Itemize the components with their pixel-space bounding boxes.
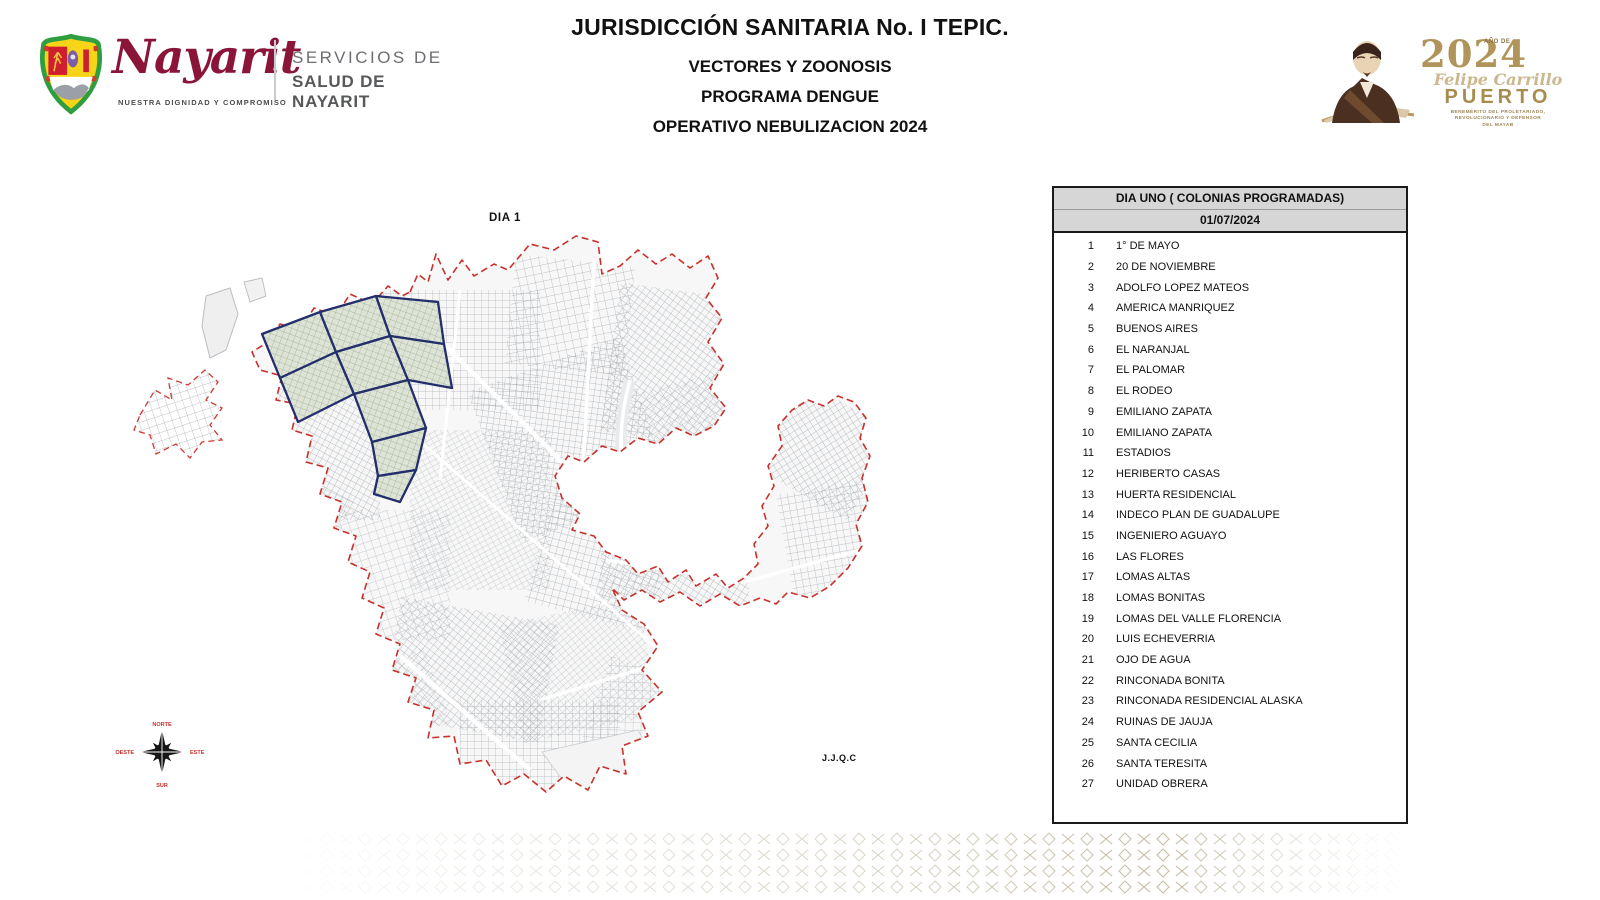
row-number: 9 [1054,406,1094,418]
table-row: 5BUENOS AIRES [1054,319,1406,340]
table-row: 6EL NARANJAL [1054,339,1406,360]
row-number: 20 [1054,633,1094,645]
outlying-areas [202,278,266,358]
colonia-name: LOMAS BONITAS [1116,592,1205,604]
row-number: 22 [1054,675,1094,687]
colonia-name: HUERTA RESIDENCIAL [1116,489,1236,501]
svg-text:ESTE: ESTE [190,750,205,756]
row-number: 26 [1054,758,1094,770]
row-number: 19 [1054,613,1094,625]
colonia-name: UNIDAD OBRERA [1116,778,1208,790]
colonia-name: LUIS ECHEVERRIA [1116,633,1215,645]
org-line-2: SALUD DE NAYARIT [292,72,466,112]
colonia-name: EL RODEO [1116,385,1172,397]
colonia-name: RUINAS DE JAUJA [1116,716,1213,728]
table-row: 14INDECO PLAN DE GUADALUPE [1054,505,1406,526]
colonia-name: EL PALOMAR [1116,364,1185,376]
logo-divider [274,40,276,100]
colonia-name: SANTA TERESITA [1116,758,1207,770]
colonia-name: RINCONADA RESIDENCIAL ALASKA [1116,695,1303,707]
decorative-pattern-band [280,831,1420,895]
table-row: 220 DE NOVIEMBRE [1054,257,1406,278]
table-row: 27UNIDAD OBRERA [1054,774,1406,795]
table-row: 25SANTA CECILIA [1054,733,1406,754]
table-row: 22RINCONADA BONITA [1054,670,1406,691]
colonia-name: EMILIANO ZAPATA [1116,427,1212,439]
table-row: 11ESTADIOS [1054,443,1406,464]
row-number: 1 [1054,240,1094,252]
subtitle-operativo: OPERATIVO NEBULIZACION 2024 [500,117,1080,137]
row-number: 23 [1054,695,1094,707]
colonia-name: INDECO PLAN DE GUADALUPE [1116,509,1280,521]
table-row: 11° DE MAYO [1054,236,1406,257]
org-name: SERVICIOS DE SALUD DE NAYARIT [292,48,466,112]
table-row: 9EMILIANO ZAPATA [1054,402,1406,423]
row-number: 11 [1054,447,1094,459]
colonia-name: OJO DE AGUA [1116,654,1191,666]
compass-rose-icon: NORTE SUR ESTE OESTE [115,722,204,789]
row-number: 5 [1054,323,1094,335]
row-number: 24 [1054,716,1094,728]
table-row: 3ADOLFO LOPEZ MATEOS [1054,277,1406,298]
table-row: 26SANTA TERESITA [1054,753,1406,774]
colonia-name: 1° DE MAYO [1116,240,1180,252]
year-2024: 2024 AÑO DE [1420,32,1570,72]
table-row: 15INGENIERO AGUAYO [1054,526,1406,547]
row-number: 3 [1054,282,1094,294]
colonia-name: LOMAS DEL VALLE FLORENCIA [1116,613,1281,625]
row-number: 15 [1054,530,1094,542]
colonia-name: ESTADIOS [1116,447,1171,459]
table-row: 20LUIS ECHEVERRIA [1054,629,1406,650]
table-row: 17LOMAS ALTAS [1054,567,1406,588]
colonia-name: 20 DE NOVIEMBRE [1116,261,1216,273]
row-number: 8 [1054,385,1094,397]
table-header-date: 01/07/2024 [1054,209,1406,231]
table-row: 8EL RODEO [1054,381,1406,402]
legend-line-3: DEL MAYAB [1413,123,1583,129]
colonia-name: EL NARANJAL [1116,344,1190,356]
page-title: JURISDICCIÓN SANITARIA No. I TEPIC. [500,14,1080,41]
map-day-label: DIA 1 [460,212,550,224]
svg-text:SUR: SUR [156,783,168,789]
row-number: 2 [1054,261,1094,273]
row-number: 7 [1054,364,1094,376]
table-row: 23RINCONADA RESIDENCIAL ALASKA [1054,691,1406,712]
svg-text:NORTE: NORTE [152,722,172,728]
name-caps: PUERTO [1418,86,1578,109]
table-row: 7EL PALOMAR [1054,360,1406,381]
city-map-svg: NORTE SUR ESTE OESTE J.J.Q.C [110,230,900,800]
felipe-carrillo-portrait-icon [1310,28,1418,128]
colonia-name: RINCONADA BONITA [1116,675,1225,687]
colonia-name: LOMAS ALTAS [1116,571,1190,583]
table-row: 4AMERICA MANRIQUEZ [1054,298,1406,319]
nayarit-coat-of-arms-icon [38,33,104,115]
colonia-name: SANTA CECILIA [1116,737,1197,749]
table-body: 11° DE MAYO220 DE NOVIEMBRE3ADOLFO LOPEZ… [1054,233,1406,795]
table-row: 13HUERTA RESIDENCIAL [1054,484,1406,505]
west-satellite-area [134,370,222,458]
tepic-city-map: DIA 1 [110,200,900,810]
nayarit-health-logo: Nayarit NUESTRA DIGNIDAD Y COMPROMISO SE… [36,28,466,128]
svg-text:OESTE: OESTE [115,750,134,756]
subtitle-programa: PROGRAMA DENGUE [500,87,1080,107]
table-row: 18LOMAS BONITAS [1054,588,1406,609]
colonia-name: EMILIANO ZAPATA [1116,406,1212,418]
table-row: 21OJO DE AGUA [1054,650,1406,671]
row-number: 6 [1054,344,1094,356]
table-row: 24RUINAS DE JAUJA [1054,712,1406,733]
table-header: DIA UNO ( COLONIAS PROGRAMADAS) 01/07/20… [1054,188,1406,233]
row-number: 4 [1054,302,1094,314]
row-number: 25 [1054,737,1094,749]
table-row: 19LOMAS DEL VALLE FLORENCIA [1054,608,1406,629]
document-title-block: JURISDICCIÓN SANITARIA No. I TEPIC. VECT… [500,14,1080,137]
logo-legend: BENEMÉRITO DEL PROLETARIADO, REVOLUCIONA… [1413,110,1583,129]
row-number: 13 [1054,489,1094,501]
table-row: 12HERIBERTO CASAS [1054,464,1406,485]
colonia-name: INGENIERO AGUAYO [1116,530,1226,542]
brand-tagline: NUESTRA DIGNIDAD Y COMPROMISO [118,98,287,107]
colonia-name: AMERICA MANRIQUEZ [1116,302,1235,314]
row-number: 27 [1054,778,1094,790]
subtitle-vectores: VECTORES Y ZOONOSIS [500,57,1080,77]
year-prefix-text: AÑO DE [1484,39,1510,45]
felipe-carrillo-puerto-2024-logo: 2024 AÑO DE Felipe Carrillo PUERTO BENEM… [1310,26,1580,136]
row-number: 12 [1054,468,1094,480]
colonia-name: HERIBERTO CASAS [1116,468,1220,480]
row-number: 17 [1054,571,1094,583]
row-number: 14 [1054,509,1094,521]
brand-nayarit-script: Nayarit [112,30,301,85]
row-number: 18 [1054,592,1094,604]
table-row: 16LAS FLORES [1054,546,1406,567]
row-number: 16 [1054,551,1094,563]
table-row: 10EMILIANO ZAPATA [1054,422,1406,443]
colonias-table: DIA UNO ( COLONIAS PROGRAMADAS) 01/07/20… [1052,186,1408,824]
colonia-name: LAS FLORES [1116,551,1184,563]
colonia-name: BUENOS AIRES [1116,323,1198,335]
row-number: 21 [1054,654,1094,666]
colonia-name: ADOLFO LOPEZ MATEOS [1116,282,1249,294]
org-line-1: SERVICIOS DE [292,48,466,68]
table-header-title: DIA UNO ( COLONIAS PROGRAMADAS) [1054,188,1406,209]
map-credit: J.J.Q.C [822,753,857,763]
row-number: 10 [1054,427,1094,439]
